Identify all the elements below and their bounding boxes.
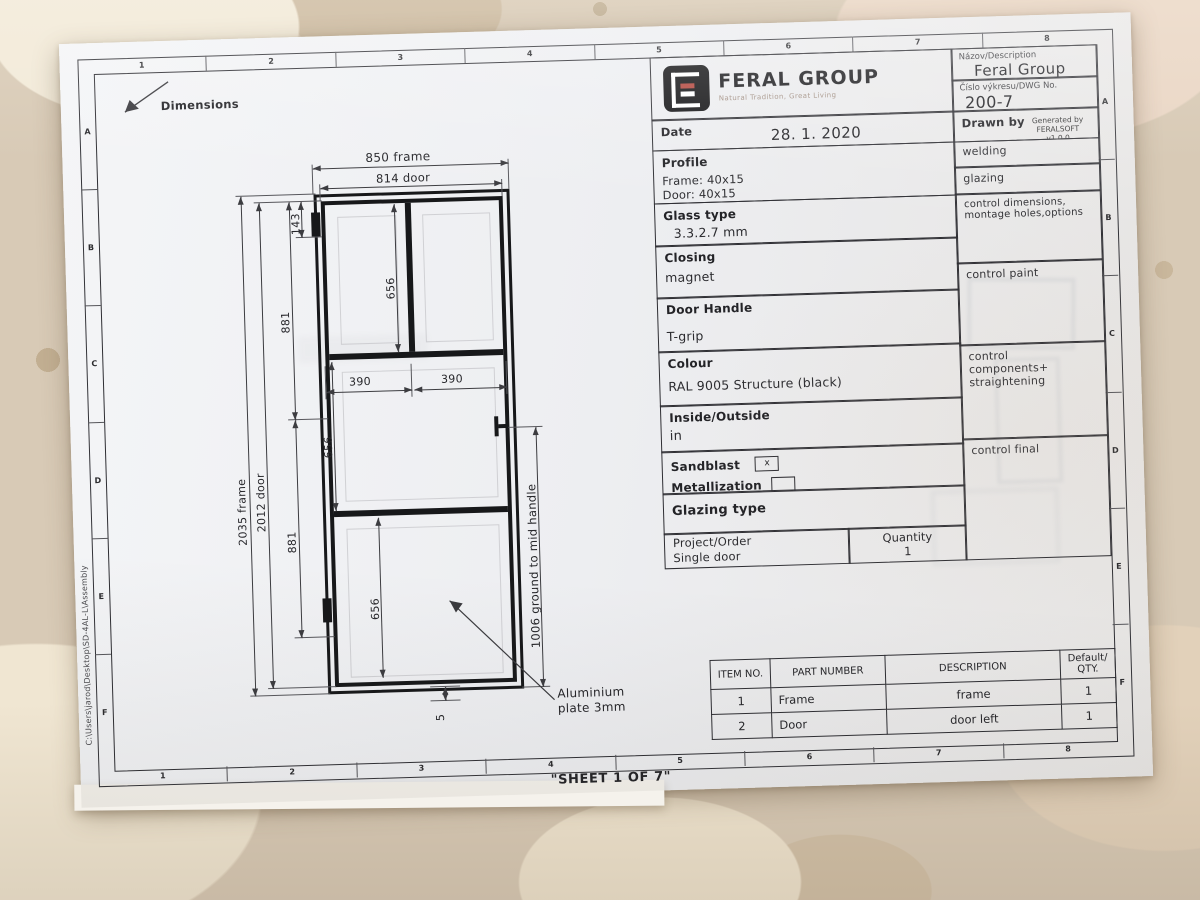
dim-frame-height-label: 2035 frame: [235, 479, 250, 546]
check-row-control-final: control final: [962, 434, 1112, 560]
dim-upper-glass-label: 656: [384, 277, 398, 299]
dim-lower-span-label: 881: [285, 531, 299, 553]
qty: 1: [1061, 702, 1117, 729]
feral-logo-icon: [663, 65, 710, 112]
zone-label: D: [88, 422, 107, 539]
zone-label: C: [85, 306, 104, 423]
dim-mid-glass-label: 656: [322, 436, 336, 458]
col-item-no: ITEM NO.: [710, 659, 771, 690]
dim-door-width-label: 814 door: [376, 170, 431, 186]
dim-pane-right-label: 390: [441, 372, 463, 386]
qty: 1: [1061, 677, 1117, 704]
sandblast-label: Sandblast: [663, 458, 741, 474]
logo-cell: FERAL GROUP Natural Tradition, Great Liv…: [650, 49, 955, 122]
dim-top-offset-label: 143: [289, 213, 303, 235]
door-handle-icon: [498, 424, 508, 428]
sandblast-checkbox: x: [755, 456, 779, 472]
dim-bottom-gap-label: 5: [434, 714, 447, 722]
check-label: welding: [954, 138, 1098, 158]
description: door left: [887, 704, 1063, 734]
zone-label: B: [81, 190, 100, 307]
glazing-bead-line: [422, 212, 494, 342]
parts-table: ITEM NO. PART NUMBER DESCRIPTION Default…: [709, 648, 1117, 740]
quantity-cell: Quantity 1: [848, 524, 968, 564]
date-label: Date: [652, 119, 692, 139]
photo-of-technical-drawing: { "sheet": { "corner_label": "Dimensions…: [0, 0, 1200, 900]
zone-label: F: [95, 655, 114, 771]
logo-text: FERAL GROUP: [718, 68, 879, 92]
item-no: 1: [711, 688, 772, 715]
check-label: control dimensions, montage holes,option…: [956, 190, 1101, 221]
view-title: Dimensions: [161, 97, 240, 113]
hinge-icon: [311, 212, 321, 236]
part-number: Frame: [771, 684, 887, 712]
dim-door-height-label: 2012 door: [254, 473, 269, 533]
dim-bottom-gap-line: [445, 687, 446, 701]
check-row-control-components: control components+ straightening: [959, 340, 1108, 440]
check-row-control-dimensions: control dimensions, montage holes,option…: [955, 189, 1103, 264]
drawn-by-value: Generated by FERALSOFT: [1017, 114, 1097, 134]
drawn-by-label: Drawn by: [953, 109, 1025, 130]
dim-pane-left-label: 390: [349, 375, 371, 389]
check-row-control-paint: control paint: [957, 258, 1105, 346]
check-label: glazing: [955, 163, 1099, 185]
project-order-cell: Project/Order Single door: [664, 528, 851, 570]
zone-label: A: [78, 74, 97, 191]
col-part-number: PART NUMBER: [770, 655, 886, 687]
drawing-sheet: 12345678 12345678 ABCDEF ABCDEF Dimensio…: [59, 12, 1153, 807]
dim-lower-glass-label: 656: [368, 598, 382, 620]
check-label: control final: [963, 435, 1107, 457]
plate-callout-label: Aluminium plate 3mm: [557, 685, 626, 717]
zone-label: E: [92, 539, 111, 656]
zone-label: E: [1109, 508, 1128, 625]
quantity-value: 1: [849, 542, 966, 559]
col-qty: Default/ QTY.: [1060, 649, 1116, 680]
dim-upper-span-label: 881: [279, 311, 293, 333]
part-number: Door: [772, 709, 888, 737]
check-label: control paint: [958, 259, 1102, 281]
item-no: 2: [712, 713, 773, 740]
file-path-note: C:\Users\jarod\Desktop\SD-4AL-L\Assembly: [79, 565, 93, 745]
hinge-icon: [322, 598, 332, 622]
check-label: control components+ straightening: [960, 342, 1075, 389]
dim-frame-width-label: 850 frame: [365, 149, 430, 165]
